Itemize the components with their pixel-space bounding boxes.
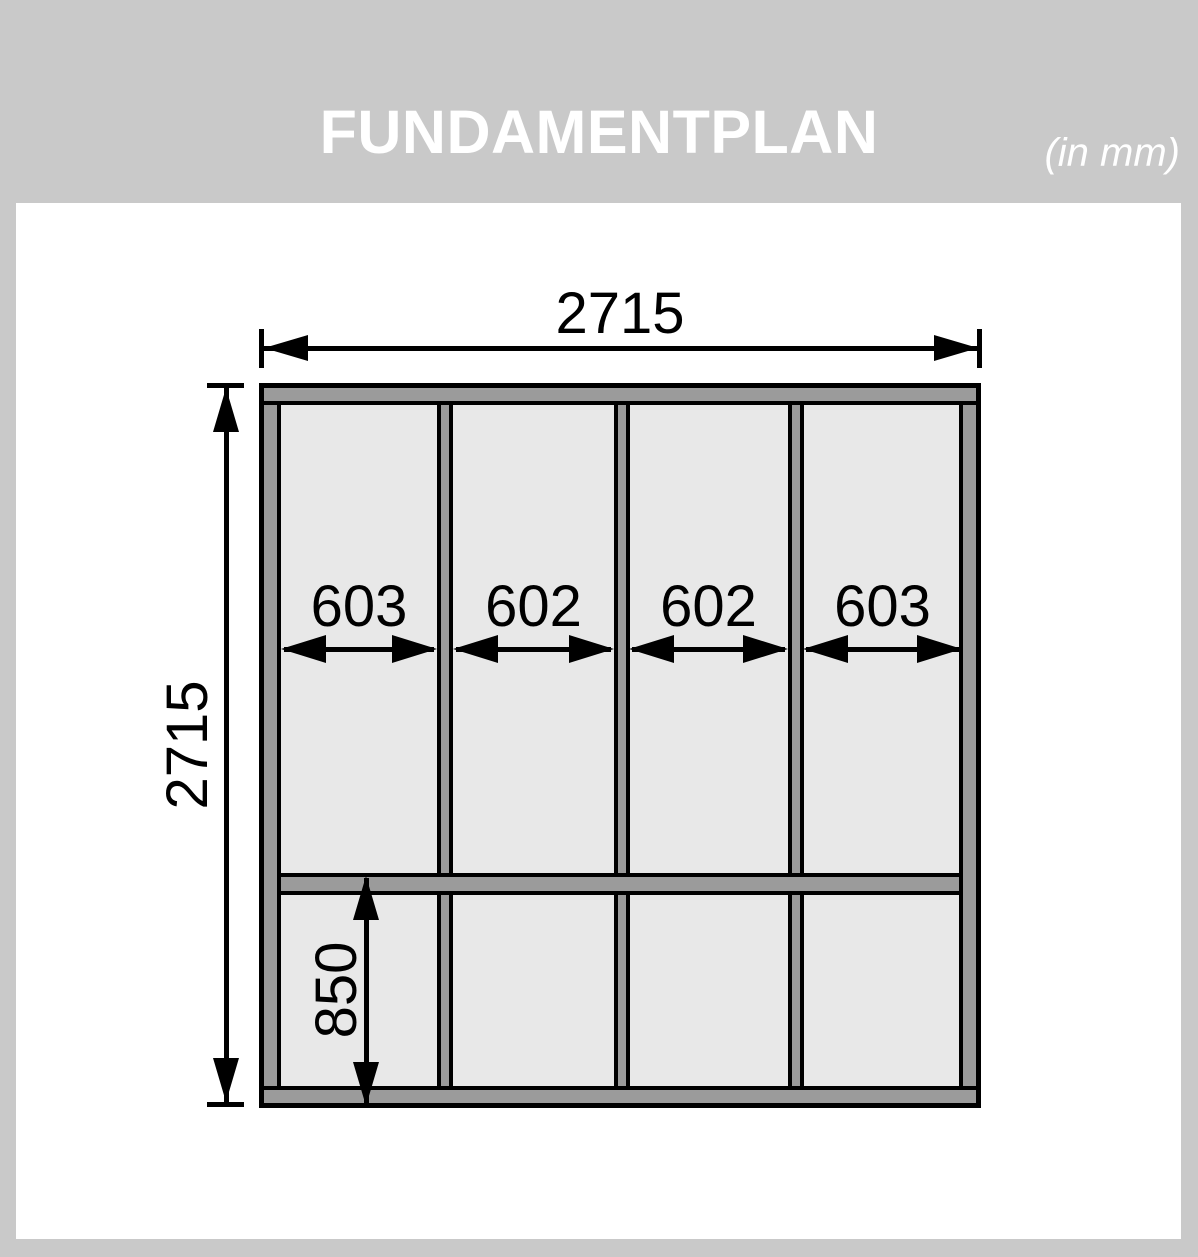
page: FUNDAMENTPLAN (in mm) 2715 2715 603 602 — [0, 0, 1198, 1257]
bay-dimension-4: 603 — [803, 578, 962, 664]
double-arrow-icon — [281, 634, 437, 664]
left-edge-beam — [264, 405, 281, 1086]
arrowhead-right-icon — [569, 635, 614, 663]
arrowhead-down-icon — [353, 1062, 379, 1106]
arrowhead-up-icon — [213, 388, 239, 432]
right-edge-beam — [959, 405, 976, 1086]
double-arrow-icon — [803, 634, 962, 664]
dim-overall-width-line — [264, 346, 978, 351]
bay-width-label: 602 — [453, 578, 614, 636]
bay-width-label: 603 — [803, 578, 962, 636]
dim-overall-width-label: 2715 — [259, 285, 981, 343]
arrowhead-right-icon — [392, 635, 437, 663]
arrowhead-up-icon — [353, 876, 379, 920]
bay-width-label: 603 — [281, 578, 437, 636]
joist-1 — [437, 405, 453, 1086]
cross-beam — [281, 873, 959, 895]
dim-overall-height-label: 2715 — [159, 595, 217, 895]
page-title: FUNDAMENTPLAN — [0, 102, 1198, 163]
arrowhead-right-icon — [743, 635, 788, 663]
dim-tick-bottom — [207, 1102, 244, 1107]
double-arrow-icon — [453, 634, 614, 664]
arrowhead-right-icon — [917, 635, 962, 663]
bay-dimension-2: 602 — [453, 578, 614, 664]
joist-2 — [614, 405, 630, 1086]
dim-overall-height-line — [224, 385, 229, 1105]
joist-3 — [788, 405, 804, 1086]
top-rim-beam — [264, 388, 976, 405]
arrowhead-left-icon — [264, 335, 308, 361]
unit-note: (in mm) — [1044, 130, 1180, 176]
arrowhead-right-icon — [934, 335, 978, 361]
bay-dimension-1: 603 — [281, 578, 437, 664]
double-arrow-icon — [629, 634, 788, 664]
bay-dimension-3: 602 — [629, 578, 788, 664]
arrowhead-down-icon — [213, 1058, 239, 1102]
bay-width-label: 602 — [629, 578, 788, 636]
